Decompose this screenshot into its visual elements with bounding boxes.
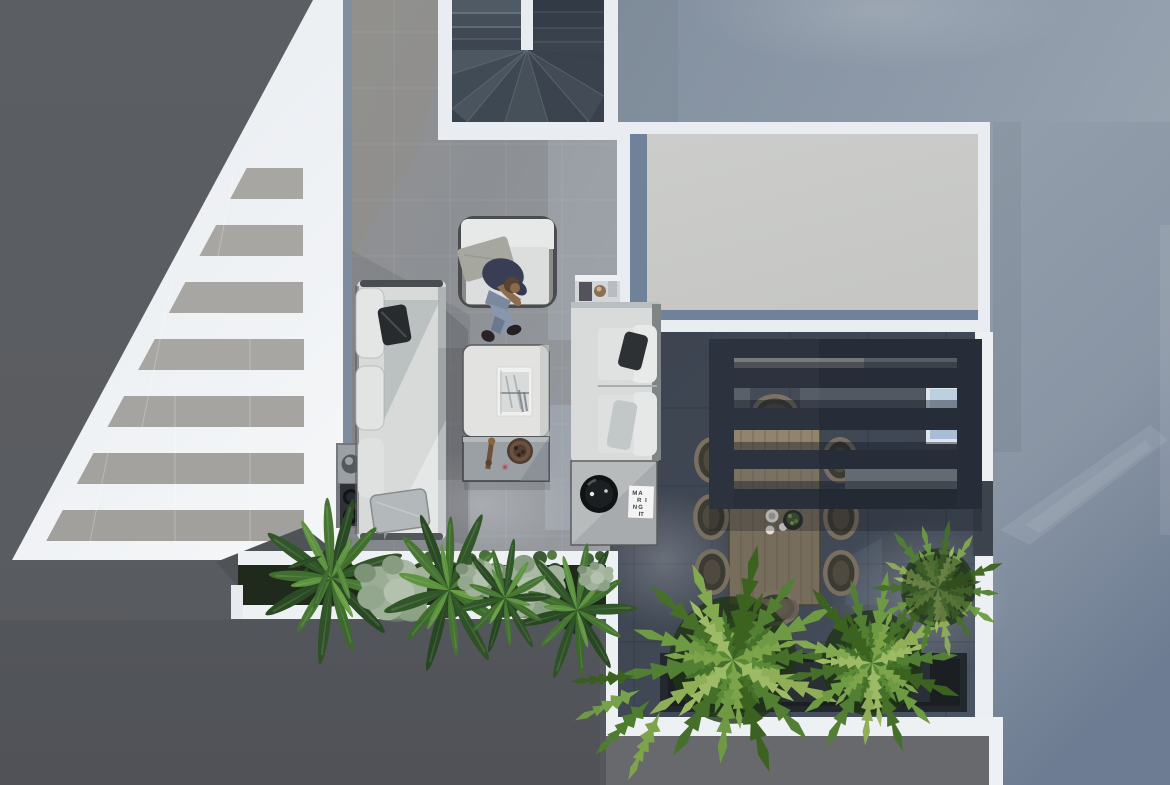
svg-text:MA: MA [632,491,644,497]
svg-text:NG: NG [633,505,644,511]
svg-text:IT: IT [638,512,644,518]
svg-text:R I: R I [637,498,648,504]
